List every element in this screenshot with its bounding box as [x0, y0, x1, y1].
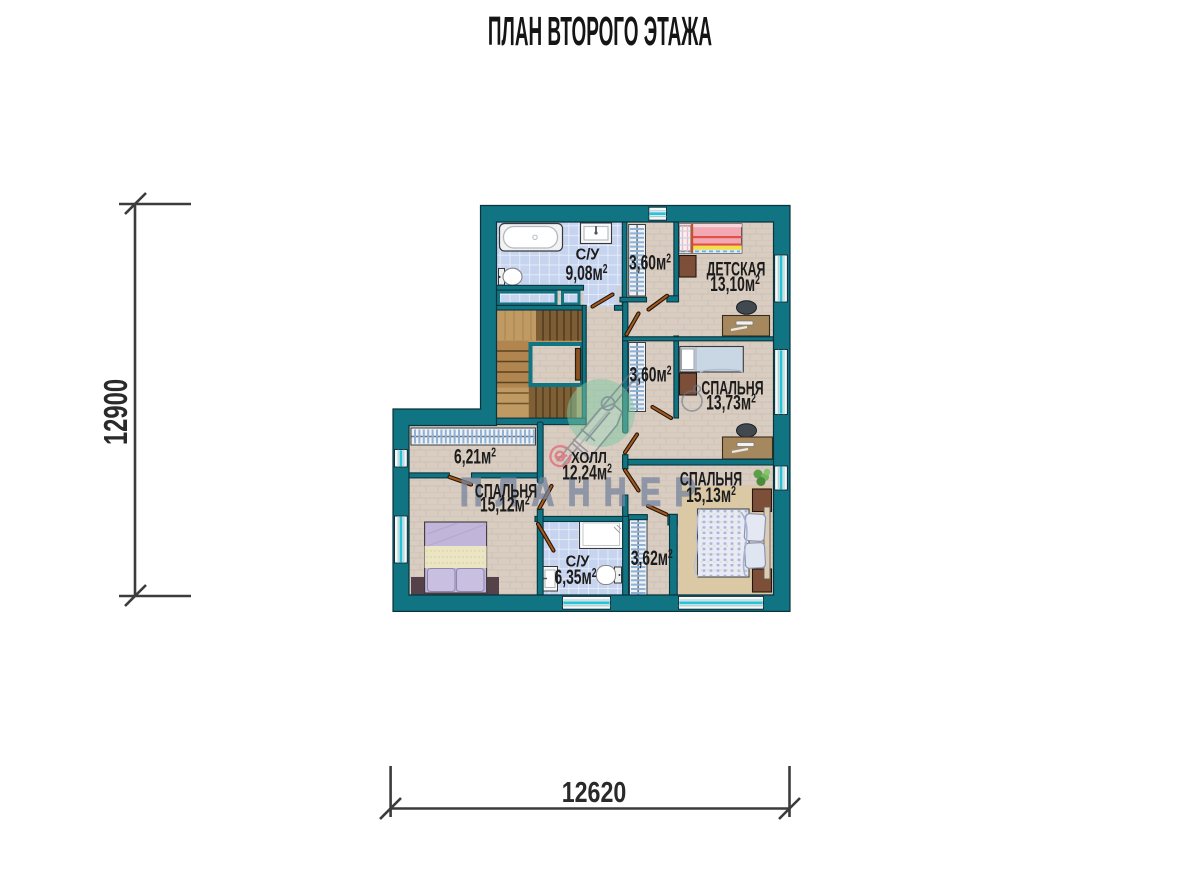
- svg-text:15,12м2: 15,12м2: [480, 493, 530, 517]
- svg-text:6,35м2: 6,35м2: [555, 565, 597, 589]
- svg-text:13,10м2: 13,10м2: [710, 272, 760, 296]
- svg-text:6,21м2: 6,21м2: [454, 445, 496, 469]
- svg-text:3,62м2: 3,62м2: [631, 546, 673, 570]
- svg-text:12900: 12900: [98, 379, 135, 445]
- svg-text:12,24м2: 12,24м2: [562, 461, 612, 485]
- svg-text:15,13м2: 15,13м2: [686, 483, 736, 507]
- svg-text:13,73м2: 13,73м2: [706, 391, 756, 415]
- svg-text:12620: 12620: [562, 775, 626, 808]
- svg-text:3,60м2: 3,60м2: [629, 251, 671, 275]
- svg-text:3,60м2: 3,60м2: [630, 363, 672, 387]
- svg-text:ПЛАН ВТОРОГО ЭТАЖА: ПЛАН ВТОРОГО ЭТАЖА: [488, 8, 712, 54]
- svg-text:9,08м2: 9,08м2: [566, 261, 608, 285]
